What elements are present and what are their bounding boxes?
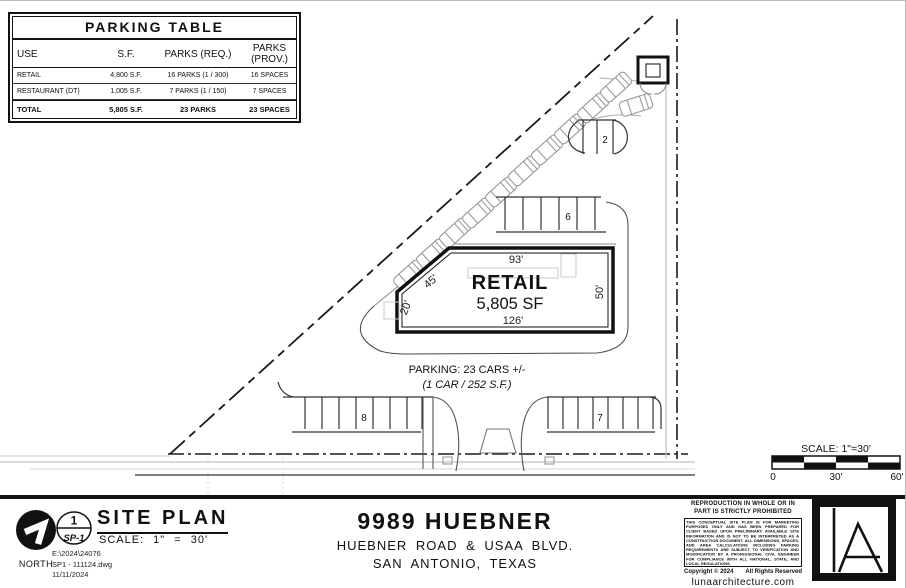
- disclaimer-body: THIS CONCEPTUAL SITE PLAN IS FOR MARKETI…: [686, 520, 799, 566]
- disclaimer-box: THIS CONCEPTUAL SITE PLAN IS FOR MARKETI…: [684, 518, 802, 567]
- website-link[interactable]: lunaarchitecture.com: [684, 577, 802, 588]
- scale-tick-30: 30': [829, 472, 842, 483]
- cell-sf: 5,805 S.F.: [99, 101, 153, 118]
- graphic-scale: SCALE: 1"=30' 0 30' 60': [770, 443, 903, 483]
- scale-tick-60: 60': [890, 472, 903, 483]
- table-row-retail: RETAIL 4,800 S.F. 16 PARKS (1 / 300) 16 …: [13, 68, 296, 84]
- cell-use: RETAIL: [13, 68, 99, 83]
- parking-table-header-row: USE S.F. PARKS (REQ.) PARKS (PROV.): [13, 40, 296, 68]
- cell-parks-req: 7 PARKS (1 / 150): [153, 84, 243, 99]
- cell-parks-prov: 7 SPACES: [243, 84, 296, 99]
- car: [599, 71, 633, 104]
- scale-tick-0: 0: [770, 472, 776, 483]
- cell-use: TOTAL: [13, 101, 99, 118]
- column-header-parks-prov: PARKS (PROV.): [243, 40, 296, 67]
- enclosure: [638, 57, 668, 94]
- column-header-sf: S.F.: [99, 46, 153, 62]
- parking-row-middle: [496, 197, 606, 232]
- detail-number: 1: [71, 514, 78, 528]
- cell-sf: 1,005 S.F.: [99, 84, 153, 99]
- sheet-number: SP-1: [63, 533, 84, 544]
- parking-note: PARKING: 23 CARS +/-: [409, 364, 526, 376]
- project-info: 9989 HUEBNER HUEBNER ROAD & USAA BLVD. S…: [280, 508, 630, 571]
- cell-parks-prov: 16 SPACES: [243, 68, 296, 83]
- copyright-text: Copyright © 2024: [684, 569, 733, 575]
- drawing-scale: SCALE: 1" = 30': [99, 534, 208, 546]
- parking-ratio: (1 CAR / 252 S.F.): [422, 379, 511, 391]
- disclaimer-header: REPRODUCTION IN WHOLE OR IN PART IS STRI…: [684, 501, 802, 516]
- parking-table: PARKING TABLE USE S.F. PARKS (REQ.) PARK…: [8, 12, 301, 123]
- disclaimer-block: REPRODUCTION IN WHOLE OR IN PART IS STRI…: [684, 501, 802, 588]
- cell-use: RESTAURANT (DT): [13, 84, 99, 99]
- luna-architecture-logo: [806, 499, 898, 585]
- cell-sf: 4,800 S.F.: [99, 68, 153, 83]
- file-path: E:\2024\24076: [52, 549, 112, 560]
- project-title: 9989 HUEBNER: [280, 508, 630, 535]
- parking-row-bottom-left: [278, 382, 433, 432]
- title-block-divider: [0, 495, 906, 499]
- drawing-title: SITE PLAN: [97, 507, 228, 534]
- cell-parks-req: 16 PARKS (1 / 300): [153, 68, 243, 83]
- building-area: 5,805 SF: [477, 295, 544, 313]
- graphic-scale-label: SCALE: 1"=30': [801, 443, 871, 455]
- project-address-2: SAN ANTONIO, TEXAS: [280, 556, 630, 571]
- copyright-row: Copyright © 2024 All Rights Reserved: [684, 569, 802, 575]
- north-arrow-icon: [13, 509, 59, 553]
- site-plan-sheet: 2 6 93' RETAIL 5,805 SF 126': [0, 0, 906, 588]
- stall-count-bottom-right: 7: [597, 413, 603, 424]
- detail-bubble: 1 SP-1: [54, 510, 94, 550]
- project-address-1: HUEBNER ROAD & USAA BLVD.: [280, 538, 630, 553]
- car: [618, 93, 653, 117]
- building-name: RETAIL: [472, 272, 549, 294]
- file-date: 11/11/2024: [52, 570, 112, 581]
- stall-count-bottom-left: 8: [361, 413, 367, 424]
- driveway: [423, 397, 554, 471]
- cell-parks-prov: 23 SPACES: [243, 101, 296, 118]
- rights-text: All Rights Reserved: [745, 569, 802, 575]
- column-header-use: USE: [13, 46, 99, 62]
- parking-row-bottom-right: [547, 397, 661, 432]
- file-info: E:\2024\24076 SP1 - 111124.dwg 11/11/202…: [52, 549, 112, 581]
- column-header-parks-req: PARKS (REQ.): [153, 46, 243, 62]
- table-row-total: TOTAL 5,805 S.F. 23 PARKS 23 SPACES: [13, 100, 296, 118]
- stall-count-top: 2: [602, 135, 608, 146]
- stall-count-middle: 6: [565, 212, 571, 223]
- cell-parks-req: 23 PARKS: [153, 101, 243, 118]
- building-dim-top: 93': [509, 254, 523, 266]
- parking-table-title: PARKING TABLE: [13, 17, 296, 40]
- table-row-restaurant: RESTAURANT (DT) 1,005 S.F. 7 PARKS (1 / …: [13, 84, 296, 100]
- building-dim-bottom: 126': [503, 315, 523, 327]
- building-dim-right: 50': [594, 285, 606, 299]
- file-name: SP1 - 111124.dwg: [52, 560, 112, 571]
